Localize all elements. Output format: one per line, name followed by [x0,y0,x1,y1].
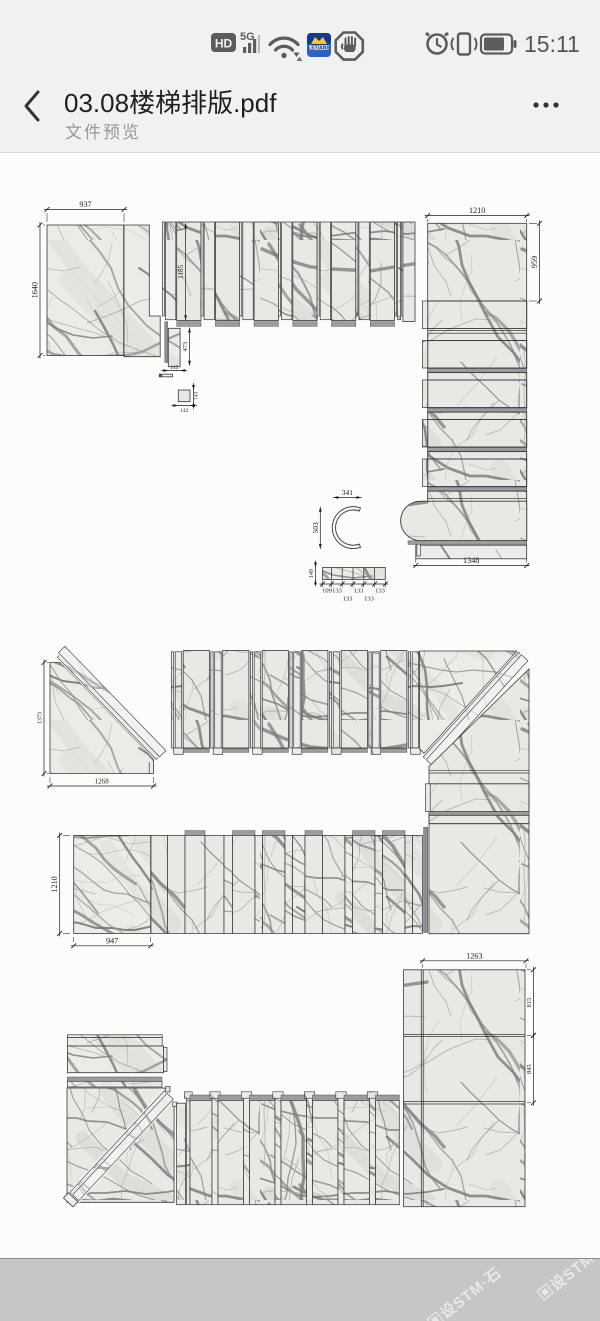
svg-text:473: 473 [182,342,189,352]
svg-text:1185: 1185 [177,265,185,279]
svg-text:1373: 1373 [38,712,44,724]
svg-text:15:11: 15:11 [524,31,580,57]
svg-text:1640: 1640 [31,282,40,298]
svg-text:1348: 1348 [463,556,479,565]
svg-text:LETIANS: LETIANS [308,46,330,52]
svg-text:HD: HD [215,37,233,51]
svg-text:5G: 5G [240,31,255,43]
svg-text:1210: 1210 [469,206,485,215]
svg-text:133: 133 [354,588,364,595]
svg-text:1210: 1210 [50,876,59,892]
svg-text:03.08楼梯排版.pdf: 03.08楼梯排版.pdf [64,88,277,118]
svg-text:142: 142 [180,408,189,414]
svg-text:1263: 1263 [466,951,482,960]
svg-text:133: 133 [343,596,353,603]
svg-text:959: 959 [530,256,539,268]
svg-text:947: 947 [106,936,118,945]
svg-text:109: 109 [322,588,332,595]
svg-text:143: 143 [194,392,200,401]
svg-text:1268: 1268 [95,778,110,786]
svg-text:149: 149 [309,569,315,578]
svg-text:133: 133 [364,596,374,603]
svg-text:503: 503 [311,522,320,534]
svg-text:145: 145 [170,365,179,371]
svg-text:815: 815 [526,998,533,1008]
svg-text:文件预览: 文件预览 [65,123,141,142]
svg-text:845: 845 [526,1064,533,1074]
svg-text:133: 133 [375,588,385,595]
svg-text:937: 937 [79,200,91,209]
svg-text:341: 341 [342,488,354,497]
svg-text:133: 133 [332,588,342,595]
